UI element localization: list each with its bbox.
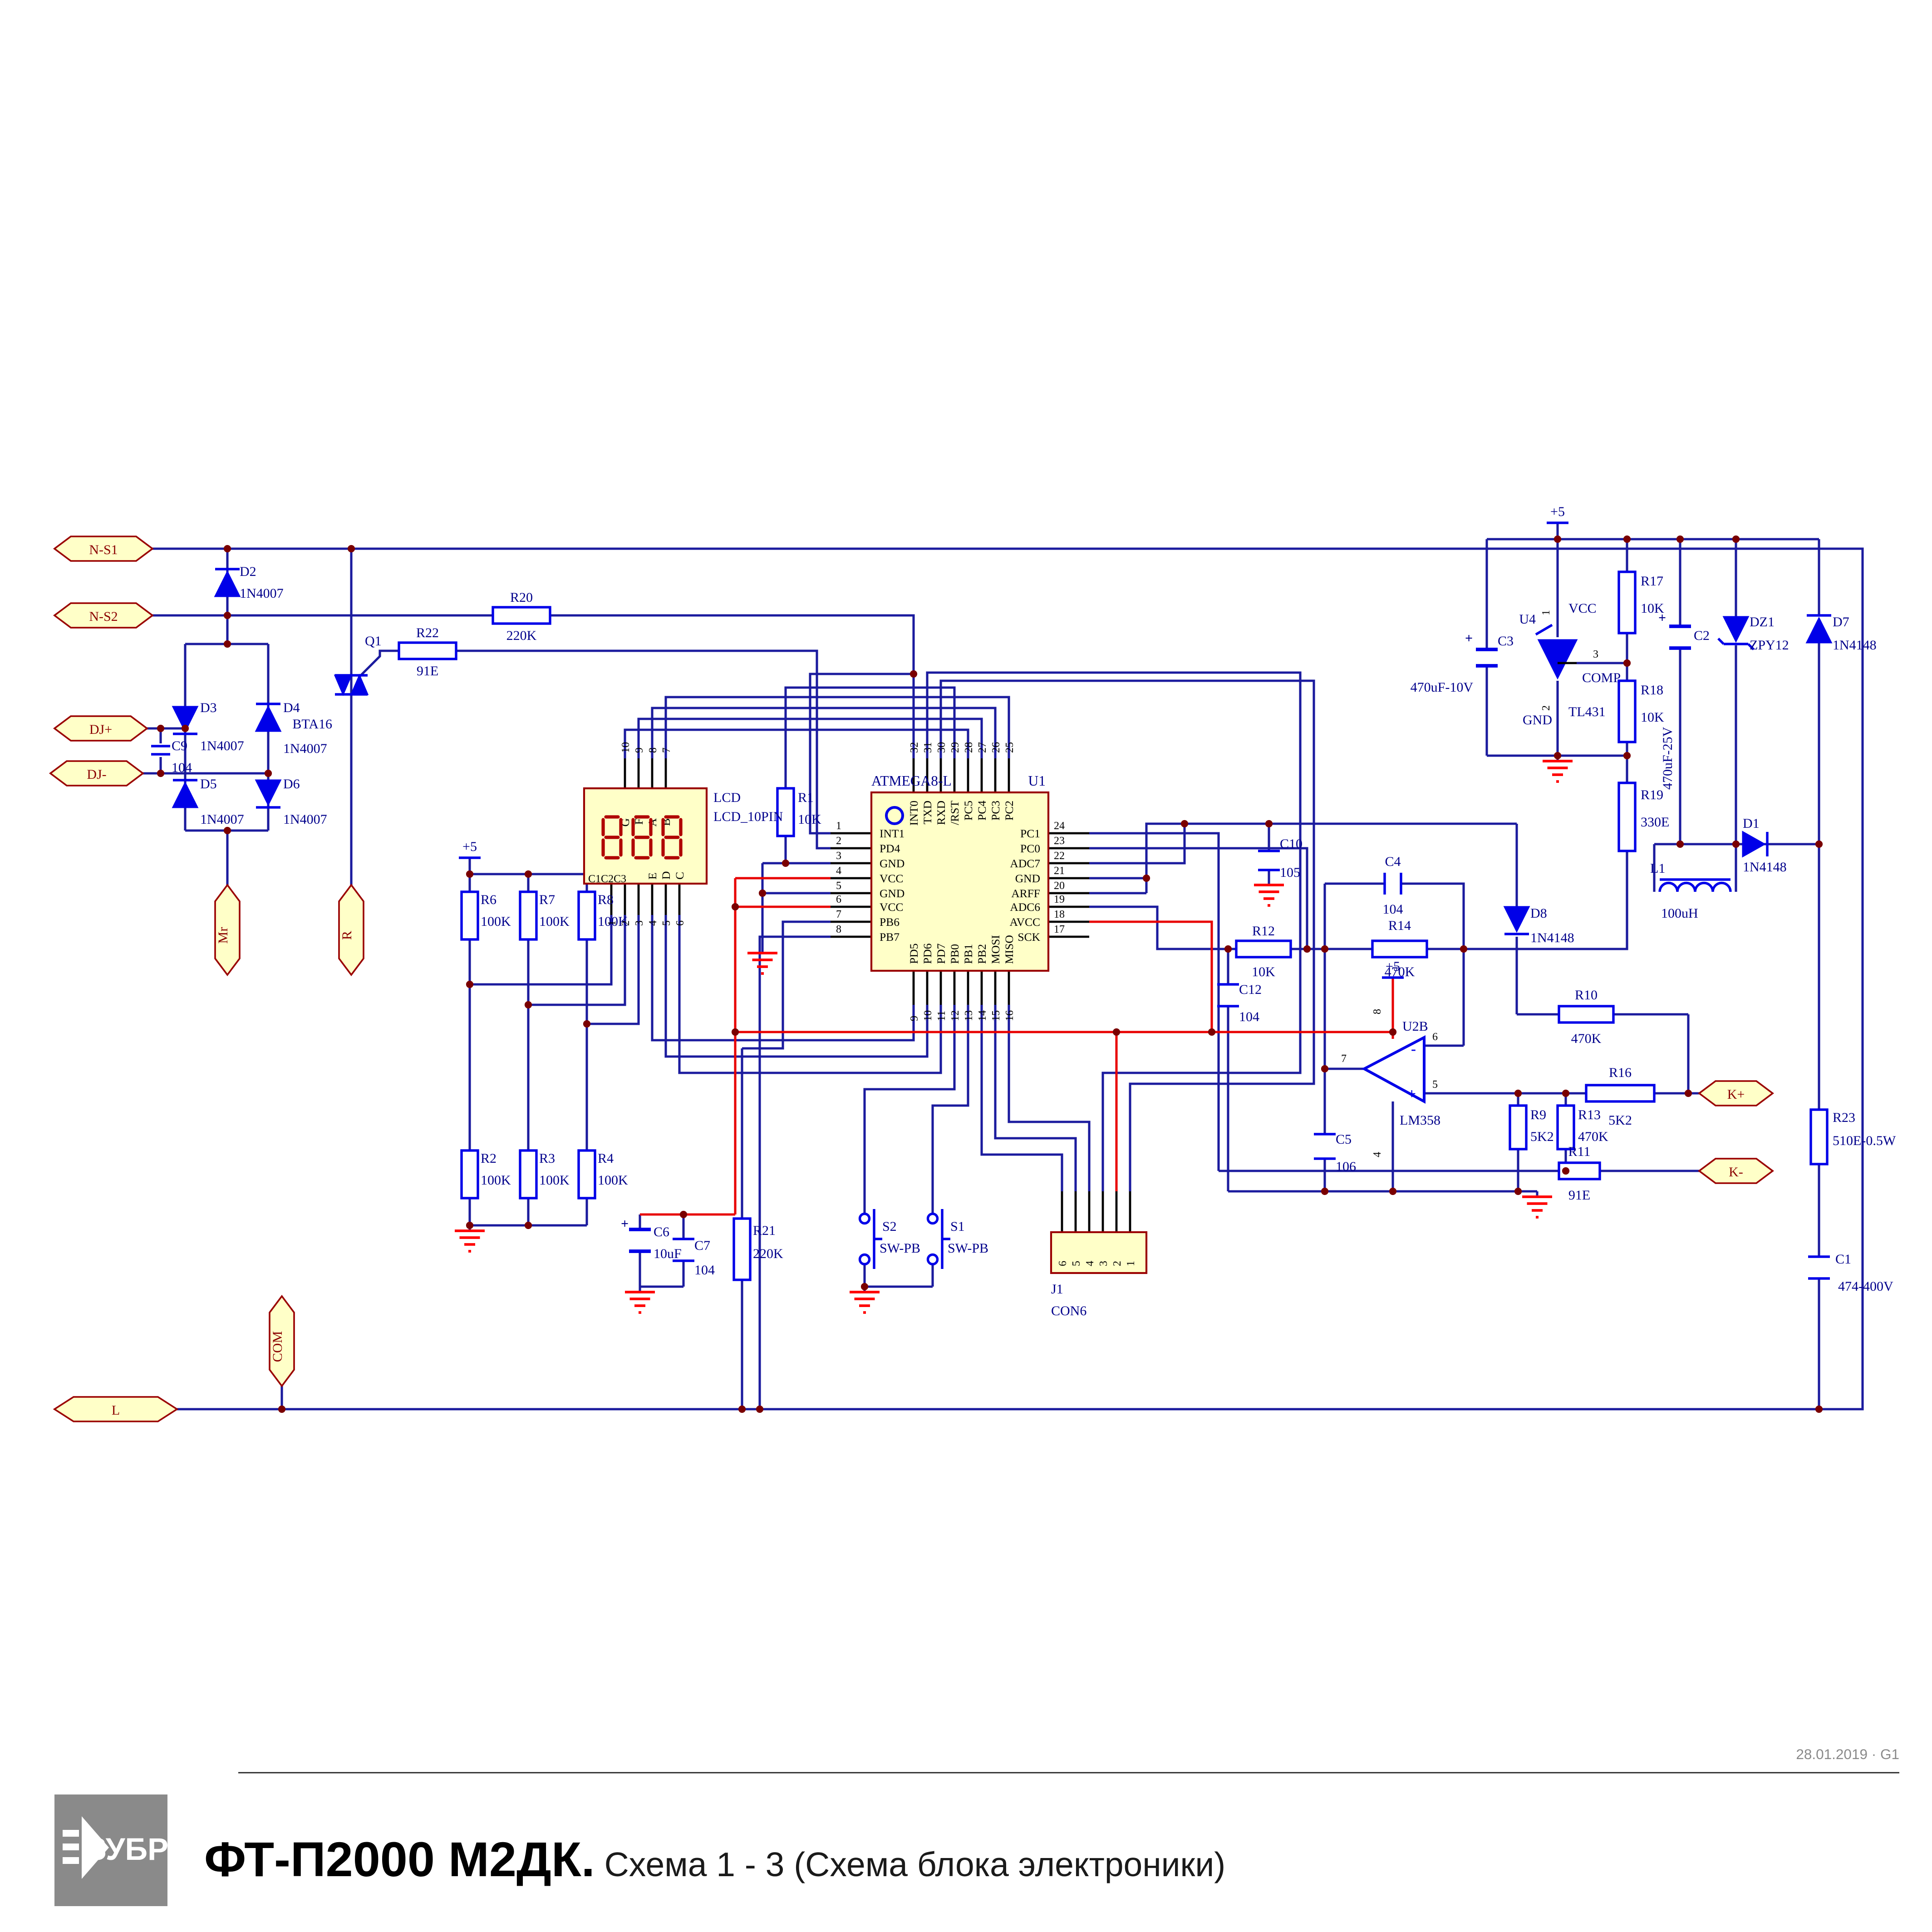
lcd-pin-num-1: 1 xyxy=(606,920,618,926)
lcd-letter-E: E xyxy=(646,872,659,880)
svg-text:+5: +5 xyxy=(1550,504,1565,519)
plus5-supply: +5 xyxy=(1547,504,1568,523)
junction-dots xyxy=(157,536,1823,1413)
u1-pin-num-27: 27 xyxy=(977,742,988,753)
svg-text:R9: R9 xyxy=(1530,1107,1546,1122)
svg-text:220K: 220K xyxy=(506,628,537,643)
svg-text:10K: 10K xyxy=(798,812,821,827)
connector-djp-label: DJ+ xyxy=(89,722,112,737)
junction-dot xyxy=(1389,1028,1396,1036)
j1-pin-num-6: 6 xyxy=(1057,1261,1069,1266)
u1-pin-num-18: 18 xyxy=(1054,909,1065,920)
wire-pb7 xyxy=(760,937,831,1409)
opamp-pin4: 4 xyxy=(1372,1152,1383,1157)
svg-text:Q1: Q1 xyxy=(365,634,382,649)
u1-pin-num-9: 9 xyxy=(909,1016,920,1021)
u1-pin-num-1: 1 xyxy=(836,820,841,832)
revision-text: 28.01.2019 · G1 xyxy=(1796,1746,1899,1762)
u1-pin-num-10: 10 xyxy=(922,1010,934,1021)
svg-text:5K2: 5K2 xyxy=(1530,1129,1554,1144)
j1-pin-num-3: 3 xyxy=(1098,1261,1110,1266)
u1-pin-label-/RST: /RST xyxy=(948,801,961,825)
u1-pin-num-23: 23 xyxy=(1054,835,1065,847)
lcd-pin-num-3: 3 xyxy=(634,920,645,926)
u1-pin-label-PB0: PB0 xyxy=(948,944,961,964)
svg-text:R20: R20 xyxy=(510,590,533,605)
u1-pin-num-14: 14 xyxy=(977,1010,988,1021)
junction-dot xyxy=(278,1406,285,1413)
gnd-icon xyxy=(1543,761,1573,782)
svg-text:470uF-10V: 470uF-10V xyxy=(1411,680,1474,695)
resistor-r8 xyxy=(579,892,595,939)
junction-dot xyxy=(525,870,532,878)
u1-pin-label-PB6: PB6 xyxy=(880,915,900,929)
resistor-r13 xyxy=(1558,1106,1574,1149)
svg-text:R18: R18 xyxy=(1641,683,1663,698)
svg-text:104: 104 xyxy=(172,760,192,775)
svg-text:1N4148: 1N4148 xyxy=(1833,638,1877,653)
u1-pin-num-16: 16 xyxy=(1004,1010,1016,1021)
svg-text:BTA16: BTA16 xyxy=(292,717,332,732)
junction-dot xyxy=(756,1406,763,1413)
lcd-pin-num-9: 9 xyxy=(634,747,645,753)
j1-ref: J1 xyxy=(1051,1282,1063,1297)
junction-dot xyxy=(1321,945,1328,953)
svg-text:S1: S1 xyxy=(950,1219,965,1234)
u1-pin-num-11: 11 xyxy=(936,1011,948,1021)
u1-pin-label-GND: GND xyxy=(1015,872,1040,885)
svg-text:1N4148: 1N4148 xyxy=(1530,930,1574,945)
diode-dz1 xyxy=(1718,617,1754,649)
j1-pin-num-5: 5 xyxy=(1071,1261,1082,1266)
junction-dot xyxy=(1815,1406,1823,1413)
u4-vcc: VCC xyxy=(1568,601,1597,616)
j1-body xyxy=(1051,1232,1146,1273)
junction-dot xyxy=(680,1211,687,1218)
svg-text:S2: S2 xyxy=(882,1219,897,1234)
svg-text:R1: R1 xyxy=(798,790,814,805)
svg-text:R11: R11 xyxy=(1568,1144,1591,1159)
svg-text:R3: R3 xyxy=(539,1151,555,1166)
junction-dot xyxy=(583,1020,590,1027)
svg-text:D2: D2 xyxy=(240,564,256,579)
diode-d1 xyxy=(1743,832,1767,856)
resistor-r4 xyxy=(579,1150,595,1198)
cap-c2 xyxy=(1669,626,1691,648)
resistor-r19 xyxy=(1619,783,1635,851)
u1-pin-num-25: 25 xyxy=(1004,742,1016,753)
svg-text:220K: 220K xyxy=(753,1246,783,1261)
junction-dot xyxy=(1562,1167,1569,1175)
resistor-r18 xyxy=(1619,681,1635,742)
u1-pin-label-PC1: PC1 xyxy=(1020,827,1040,840)
svg-text:10uF: 10uF xyxy=(654,1246,682,1261)
svg-text:470K: 470K xyxy=(1385,964,1415,979)
resistor-r17 xyxy=(1619,572,1635,633)
resistor-r6 xyxy=(462,892,478,939)
u1-pin-num-26: 26 xyxy=(990,742,1002,753)
u1-pin-num-5: 5 xyxy=(836,880,841,892)
ic-name: ATMEGA8-L xyxy=(871,773,952,789)
wire-gnd-km-rails xyxy=(1219,1093,1699,1195)
connector-r-label: R xyxy=(339,931,354,940)
junction-dot xyxy=(525,1001,532,1008)
junction-dot xyxy=(1554,752,1561,759)
svg-text:SW-PB: SW-PB xyxy=(880,1241,920,1256)
svg-text:1N4007: 1N4007 xyxy=(200,738,244,753)
u1-pin-num-7: 7 xyxy=(836,909,841,920)
u1-pin-label-PD5: PD5 xyxy=(907,944,920,964)
junction-dot xyxy=(1623,752,1631,759)
u1-pin-label-INT1: INT1 xyxy=(880,827,905,840)
lcd-letter-C: C xyxy=(673,872,686,880)
c6-plus: + xyxy=(621,1216,629,1231)
u4-ref: U4 xyxy=(1519,612,1536,627)
svg-text:330E: 330E xyxy=(1641,815,1669,830)
svg-text:R6: R6 xyxy=(481,892,497,907)
u4-comp: COMP xyxy=(1582,670,1621,685)
u1-pin-label-PB1: PB1 xyxy=(962,944,975,964)
u4-gnd: GND xyxy=(1523,713,1552,728)
opamp-pin6: 6 xyxy=(1432,1031,1438,1043)
svg-text:R8: R8 xyxy=(598,892,614,907)
gnd-icon xyxy=(850,1292,880,1313)
u1-pin-num-30: 30 xyxy=(936,742,948,753)
junction-dot xyxy=(1815,841,1823,848)
u1-pin-num-13: 13 xyxy=(963,1010,975,1021)
junction-dot xyxy=(1113,1028,1120,1036)
svg-text:R13: R13 xyxy=(1578,1107,1601,1122)
cap-c12 xyxy=(1217,984,1239,1006)
wire-right-pins xyxy=(1089,824,1627,1171)
gnd-icon xyxy=(1522,1197,1552,1217)
brand-name: ЗУБР xyxy=(87,1832,168,1867)
svg-text:100K: 100K xyxy=(539,914,570,929)
svg-text:C5: C5 xyxy=(1336,1132,1352,1147)
u1-pin-label-ADC6: ADC6 xyxy=(1010,900,1040,914)
junction-dot xyxy=(759,890,766,897)
u1-pin-label-MOSI: MOSI xyxy=(989,935,1002,964)
u1-pin-num-22: 22 xyxy=(1054,850,1065,862)
diode-d4 xyxy=(256,704,280,731)
u1-pin-num-19: 19 xyxy=(1054,894,1065,905)
u1-pin-label-PC4: PC4 xyxy=(975,801,988,821)
u1-pin-label-PD6: PD6 xyxy=(921,944,934,964)
resistor-r16 xyxy=(1586,1085,1654,1101)
svg-text:100K: 100K xyxy=(539,1173,570,1188)
gnd-icon xyxy=(1254,885,1284,905)
opamp-part: LM358 xyxy=(1400,1113,1440,1128)
lcd-pin-num-5: 5 xyxy=(661,920,673,926)
svg-text:D1: D1 xyxy=(1743,816,1760,831)
junction-dot xyxy=(466,1222,473,1229)
u1-pin-label-PD4: PD4 xyxy=(880,842,900,855)
svg-text:C1: C1 xyxy=(1835,1252,1851,1267)
svg-text:100K: 100K xyxy=(598,1173,628,1188)
junction-dot xyxy=(1623,536,1631,543)
junction-dot xyxy=(1514,1188,1522,1195)
svg-text:R16: R16 xyxy=(1609,1065,1632,1080)
c2-plus: + xyxy=(1658,610,1666,625)
u1-pin-num-29: 29 xyxy=(949,742,961,753)
junction-dot xyxy=(224,827,231,834)
lcd-pin-num-8: 8 xyxy=(647,747,659,753)
j1-pin-num-4: 4 xyxy=(1084,1261,1096,1266)
diode-d8 xyxy=(1504,907,1529,934)
u1-pin-label-PC3: PC3 xyxy=(989,801,1002,821)
resistor-r23 xyxy=(1811,1110,1827,1164)
resistor-r21 xyxy=(734,1219,750,1280)
svg-text:R21: R21 xyxy=(753,1223,776,1238)
u4-pin3: 3 xyxy=(1593,649,1598,660)
opamp-pin7: 7 xyxy=(1341,1053,1347,1065)
schematic-canvas: N-S1 N-S2 DJ+ DJ- Mr R COM L K+ K- - + xyxy=(0,0,1932,1932)
junction-dot xyxy=(466,981,473,988)
cap-c3 xyxy=(1476,649,1498,666)
junction-dot xyxy=(1514,1090,1522,1097)
svg-text:104: 104 xyxy=(694,1263,715,1278)
junction-dot xyxy=(1143,875,1150,882)
junction-dot xyxy=(1265,820,1273,827)
svg-text:470K: 470K xyxy=(1571,1031,1602,1046)
lcd-pin-num-6: 6 xyxy=(674,920,686,926)
svg-text:R17: R17 xyxy=(1641,574,1663,589)
svg-text:C3: C3 xyxy=(1498,634,1514,649)
junction-dot xyxy=(1181,820,1188,827)
schematic-page: N-S1 N-S2 DJ+ DJ- Mr R COM L K+ K- - + xyxy=(0,0,1932,1932)
switch-s1[interactable] xyxy=(928,1209,951,1269)
junction-dot xyxy=(1303,945,1311,953)
svg-text:474-400V: 474-400V xyxy=(1838,1279,1893,1294)
connector-djm-label: DJ- xyxy=(87,767,106,782)
svg-text:105: 105 xyxy=(1280,865,1300,880)
junction-dot xyxy=(348,545,355,552)
u1-pin-label-PC5: PC5 xyxy=(962,801,975,821)
tl431-u4 xyxy=(1536,625,1577,678)
svg-text:104: 104 xyxy=(1239,1009,1259,1024)
resistor-r7 xyxy=(520,892,536,939)
junction-dot xyxy=(1321,1188,1328,1195)
junction-dot xyxy=(224,545,231,552)
connector-kp-label: K+ xyxy=(1727,1087,1745,1102)
diode-d6 xyxy=(256,780,280,807)
connector-ns2-label: N-S2 xyxy=(89,609,118,624)
u1-pin-num-20: 20 xyxy=(1054,880,1065,892)
svg-text:106: 106 xyxy=(1336,1159,1356,1174)
svg-text:10K: 10K xyxy=(1252,964,1275,979)
junction-dot xyxy=(1732,536,1740,543)
u1-pin-num-6: 6 xyxy=(836,894,841,905)
svg-text:D7: D7 xyxy=(1833,615,1849,629)
opamp-minus: - xyxy=(1411,1041,1416,1057)
svg-text:C12: C12 xyxy=(1239,982,1262,997)
j1-pin-num-2: 2 xyxy=(1111,1261,1123,1266)
ic-ref: U1 xyxy=(1028,773,1046,789)
wire-bridge xyxy=(185,644,268,885)
svg-text:DZ1: DZ1 xyxy=(1750,615,1775,629)
connector-l-label: L xyxy=(112,1403,120,1418)
connector-ns1-label: N-S1 xyxy=(89,542,118,557)
svg-text:R22: R22 xyxy=(416,625,439,640)
lcd-pin-num-10: 10 xyxy=(620,742,632,753)
svg-text:5K2: 5K2 xyxy=(1608,1113,1632,1128)
u1-pin-num-32: 32 xyxy=(909,742,920,753)
resistor-r12 xyxy=(1236,941,1291,957)
junction-dot xyxy=(1562,1090,1569,1097)
connector-r[interactable] xyxy=(339,885,364,975)
cap-c9 xyxy=(151,746,170,754)
svg-text:C4: C4 xyxy=(1385,854,1401,869)
opamp-u2b: - + xyxy=(1364,1037,1424,1102)
svg-text:D6: D6 xyxy=(283,777,300,791)
gnd-icon xyxy=(625,1292,655,1313)
connectors xyxy=(50,536,1773,1421)
resistor-r2 xyxy=(462,1150,478,1198)
junction-dot xyxy=(157,725,164,732)
resistor-r14 xyxy=(1372,941,1427,957)
diode-d7 xyxy=(1807,615,1831,643)
opamp-ref: U2B xyxy=(1402,1019,1428,1034)
junction-dot xyxy=(1321,1065,1328,1072)
junction-dot xyxy=(1208,1028,1215,1036)
svg-text:10K: 10K xyxy=(1641,710,1664,725)
connector-mr-label: Mr xyxy=(216,927,231,944)
junction-dot xyxy=(224,640,231,648)
opamp-pin8: 8 xyxy=(1372,1009,1383,1014)
cap-c1 xyxy=(1808,1257,1830,1278)
connector-com-label: COM xyxy=(270,1331,285,1362)
svg-text:R23: R23 xyxy=(1833,1110,1855,1125)
u1-pin-num-3: 3 xyxy=(836,850,841,862)
wire-pb6-r21 xyxy=(742,922,831,1409)
junction-dot xyxy=(782,860,789,867)
u1-pin-num-21: 21 xyxy=(1054,865,1065,877)
junction-dot xyxy=(157,770,164,777)
svg-text:R4: R4 xyxy=(598,1151,614,1166)
svg-text:1N4007: 1N4007 xyxy=(283,741,327,756)
plus5-divider: +5 xyxy=(459,839,481,858)
junction-dot xyxy=(1685,1090,1692,1097)
page-title: ФТ-П2000 М2ДК. Схема 1 - 3 (Схема блока … xyxy=(204,1832,1225,1887)
junction-dot xyxy=(732,903,739,910)
junction-dot xyxy=(861,1283,868,1290)
u1-pin-num-2: 2 xyxy=(836,835,841,847)
svg-text:C9: C9 xyxy=(172,738,187,753)
gnd-icon xyxy=(455,1231,485,1251)
junction-dot xyxy=(525,1222,532,1229)
junction-dot xyxy=(224,612,231,619)
svg-text:91E: 91E xyxy=(417,664,438,678)
junction-dot xyxy=(732,1028,739,1036)
svg-text:C10: C10 xyxy=(1280,836,1303,851)
j1-pin-num-1: 1 xyxy=(1125,1261,1137,1266)
u1-pin-label-GND: GND xyxy=(880,887,905,900)
svg-text:D5: D5 xyxy=(200,777,217,791)
svg-text:R2: R2 xyxy=(481,1151,497,1166)
u1-pin-label-AVCC: AVCC xyxy=(1009,915,1040,929)
opamp-plus: + xyxy=(1407,1086,1416,1102)
lcd-bottom-group: C1C2C3 xyxy=(588,873,626,885)
u1-pin-label-MISO: MISO xyxy=(1003,935,1016,964)
lcd-pin-num-7: 7 xyxy=(661,747,673,753)
u1-pin-num-24: 24 xyxy=(1054,820,1065,832)
u1-pin-label-ADC7: ADC7 xyxy=(1010,857,1040,870)
junction-dot xyxy=(910,670,917,678)
u1-pin-label-INT0: INT0 xyxy=(907,801,920,826)
junction-dot xyxy=(1676,841,1684,848)
u4-pin1: 1 xyxy=(1540,610,1552,615)
svg-text:100uH: 100uH xyxy=(1661,906,1698,921)
lcd-pin-num-2: 2 xyxy=(620,920,632,926)
svg-text:470uF-25V: 470uF-25V xyxy=(1660,727,1675,790)
lcd-type: LCD_10PIN xyxy=(713,809,783,824)
u1-pin-label-TXD: TXD xyxy=(921,801,934,824)
svg-text:R12: R12 xyxy=(1252,924,1275,939)
svg-text:L1: L1 xyxy=(1650,861,1665,876)
cap-c5 xyxy=(1314,1134,1336,1159)
j1-type: CON6 xyxy=(1051,1303,1086,1318)
u1-pin-label-VCC: VCC xyxy=(880,872,903,885)
svg-text:R10: R10 xyxy=(1575,988,1598,1003)
u1-pin-num-12: 12 xyxy=(949,1010,961,1021)
u1-pin-label-VCC: VCC xyxy=(880,900,903,914)
u1-pin-label-ARFF: ARFF xyxy=(1011,887,1040,900)
u1-pin-num-31: 31 xyxy=(922,742,934,753)
cap-c4 xyxy=(1385,873,1401,895)
connector-km-label: K- xyxy=(1729,1165,1743,1180)
switch-s2[interactable] xyxy=(860,1209,883,1269)
svg-text:100K: 100K xyxy=(481,1173,511,1188)
u1-pin-label-PD7: PD7 xyxy=(934,943,948,964)
u1-pin-num-8: 8 xyxy=(836,924,841,935)
junction-dot xyxy=(265,770,272,777)
lcd-name: LCD xyxy=(713,790,741,805)
resistor-r3 xyxy=(520,1150,536,1198)
junction-dot xyxy=(1224,945,1232,953)
resistor-r22 xyxy=(399,643,456,659)
resistor-r9 xyxy=(1510,1106,1526,1149)
junction-dot xyxy=(1732,841,1740,848)
junction-dot xyxy=(182,725,189,732)
svg-text:SW-PB: SW-PB xyxy=(948,1241,988,1256)
svg-text:ZPY12: ZPY12 xyxy=(1750,638,1789,653)
title-block: 28.01.2019 · G1 ЗУБР ФТ-П2000 М2ДК. Схем… xyxy=(54,1746,1899,1906)
u4-part: TL431 xyxy=(1568,704,1606,719)
svg-text:1N4007: 1N4007 xyxy=(240,586,284,601)
svg-text:D4: D4 xyxy=(283,700,300,715)
svg-text:C7: C7 xyxy=(694,1238,710,1253)
u1-pin-label-PB7: PB7 xyxy=(880,930,900,944)
svg-text:D8: D8 xyxy=(1530,906,1547,921)
svg-text:1N4148: 1N4148 xyxy=(1743,860,1787,875)
svg-text:R14: R14 xyxy=(1388,918,1411,933)
wire-supply-right xyxy=(1654,539,1819,1409)
svg-text:1N4007: 1N4007 xyxy=(283,812,327,827)
u1-pin-label-GND: GND xyxy=(880,857,905,870)
lcd-letter-B: B xyxy=(659,818,673,826)
junction-dot xyxy=(466,870,473,878)
svg-text:100K: 100K xyxy=(481,914,511,929)
diode-d5 xyxy=(173,780,197,807)
diode-d2 xyxy=(215,569,240,596)
u1-pin-num-28: 28 xyxy=(963,742,975,753)
svg-text:104: 104 xyxy=(1383,902,1403,917)
lcd-letter-D: D xyxy=(659,871,673,880)
svg-text:R7: R7 xyxy=(539,892,555,907)
svg-text:+5: +5 xyxy=(462,839,477,854)
u1-pin-label-PB2: PB2 xyxy=(975,944,988,964)
u4-pin2: 2 xyxy=(1540,705,1552,711)
